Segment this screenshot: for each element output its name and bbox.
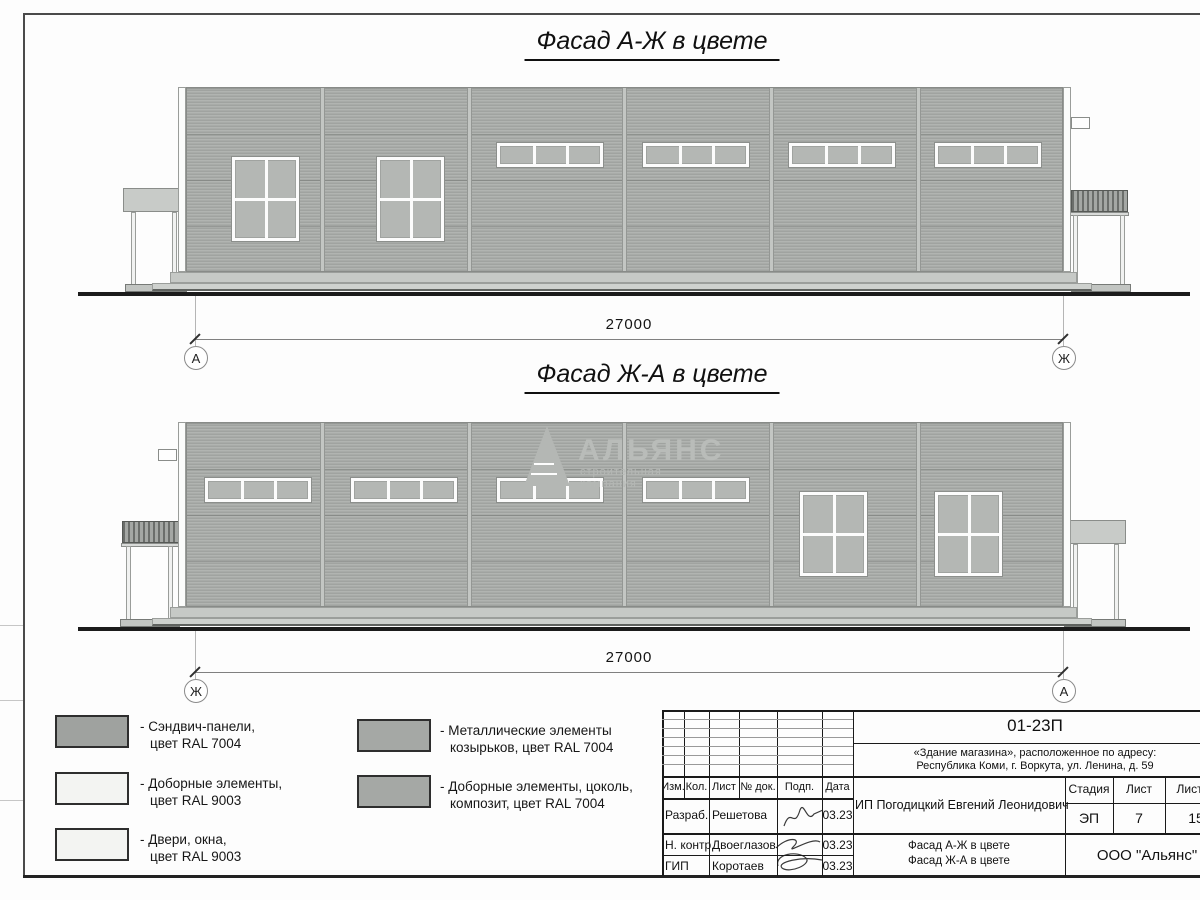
strip-window bbox=[205, 478, 311, 502]
doc-code: 01-23П bbox=[855, 716, 1200, 736]
watermark-name: АЛЬЯНС bbox=[578, 434, 724, 468]
title-block-line bbox=[662, 728, 853, 729]
col-header-list: Лист bbox=[709, 781, 739, 793]
window-mullion bbox=[712, 146, 715, 164]
panel-joint bbox=[769, 423, 774, 606]
title-block-line bbox=[1113, 776, 1114, 833]
row-date: 03.23 bbox=[822, 808, 853, 822]
row-name: Двоеглазов bbox=[712, 838, 776, 852]
canopy-post bbox=[1114, 544, 1119, 620]
sheet-title-line1: Фасад А-Ж в цвете bbox=[855, 840, 1063, 852]
col-header-data: Дата bbox=[822, 781, 853, 793]
title-block-line bbox=[662, 710, 1200, 712]
plinth-lower bbox=[152, 283, 1092, 291]
title-block-line bbox=[662, 755, 853, 756]
company-name: ООО "Альянс" bbox=[1067, 847, 1200, 864]
axis-marker: А bbox=[1052, 679, 1076, 703]
title-block-line bbox=[662, 710, 664, 876]
legend-label: цвет RAL 9003 bbox=[140, 848, 241, 865]
legend-swatch-ral9003 bbox=[55, 828, 129, 861]
dimension-line bbox=[195, 339, 1063, 340]
legend-label: цвет RAL 9003 bbox=[140, 792, 282, 809]
corner-strip bbox=[1063, 422, 1071, 607]
ground-line bbox=[78, 627, 1190, 631]
panel-joint bbox=[916, 88, 921, 271]
title-block-line bbox=[777, 710, 778, 876]
sheet-header: Лист bbox=[1113, 782, 1165, 796]
sheet-title-line2: Фасад Ж-А в цвете bbox=[855, 855, 1063, 867]
canopy-post bbox=[131, 212, 136, 285]
window-mullion bbox=[235, 198, 296, 201]
panel-joint bbox=[467, 423, 472, 606]
legend-swatch-ral9003 bbox=[55, 772, 129, 805]
window-mullion bbox=[241, 481, 244, 499]
legend-label: - Сэндвич-панели, bbox=[140, 718, 255, 735]
legend-swatch-ral7004 bbox=[357, 719, 431, 752]
drawing-sheet: { "titles": { "facade1": "Фасад А-Ж в цв… bbox=[0, 0, 1200, 900]
strip-window bbox=[497, 143, 603, 167]
row-role: ГИП bbox=[665, 859, 689, 873]
canopy-fascia bbox=[1062, 520, 1126, 544]
title-block-line bbox=[709, 710, 710, 876]
legend-label: цвет RAL 7004 bbox=[140, 735, 255, 752]
title-block-line bbox=[662, 798, 853, 800]
title-block-line bbox=[1065, 776, 1066, 876]
watermark-subtitle: строительная компания bbox=[580, 466, 662, 490]
plinth-upper bbox=[170, 607, 1077, 618]
plinth-lower bbox=[152, 618, 1092, 626]
title-block-line bbox=[853, 710, 854, 876]
corner-strip bbox=[1063, 87, 1071, 272]
window-mullion bbox=[380, 198, 441, 201]
panel-joint bbox=[467, 88, 472, 271]
title-block-line bbox=[822, 710, 823, 876]
signature bbox=[781, 800, 826, 832]
window-mullion bbox=[1004, 146, 1007, 164]
window-mullion bbox=[679, 481, 682, 499]
project-address-line1: «Здание магазина», расположенное по адре… bbox=[855, 747, 1200, 759]
title-block-line bbox=[853, 743, 1200, 744]
panel-joint bbox=[320, 88, 325, 271]
row-name: Коротаев bbox=[712, 859, 764, 873]
large-window bbox=[800, 492, 867, 576]
window-mullion bbox=[274, 481, 277, 499]
canopy-post bbox=[1120, 215, 1125, 285]
row-name: Решетова bbox=[712, 808, 767, 822]
large-window bbox=[232, 157, 299, 241]
corner-strip bbox=[178, 87, 186, 272]
large-window bbox=[935, 492, 1002, 576]
strip-window bbox=[789, 143, 895, 167]
strip-window bbox=[351, 478, 457, 502]
legend-label: - Двери, окна, bbox=[140, 831, 241, 848]
title-block-line bbox=[1165, 776, 1166, 833]
panel-joint bbox=[622, 88, 627, 271]
panel-joint bbox=[769, 88, 774, 271]
legend-label: - Доборные элементы, цоколь, bbox=[440, 778, 633, 795]
watermark-logo-icon bbox=[524, 426, 570, 486]
canopy-post bbox=[126, 546, 131, 620]
roof-vent bbox=[1071, 117, 1090, 129]
dimension-line bbox=[195, 672, 1063, 673]
legend-swatch-ral7004 bbox=[357, 775, 431, 808]
window-mullion bbox=[825, 146, 828, 164]
row-role: Н. контр. bbox=[665, 838, 715, 852]
window-mullion bbox=[803, 533, 864, 536]
ground-line bbox=[78, 292, 1190, 296]
window-mullion bbox=[566, 146, 569, 164]
window-mullion bbox=[420, 481, 423, 499]
col-header-podp: Подп. bbox=[777, 781, 822, 793]
strip-window bbox=[643, 143, 749, 167]
window-mullion bbox=[712, 481, 715, 499]
sheets-header: Листов bbox=[1165, 782, 1200, 796]
dimension-value: 27000 bbox=[569, 316, 689, 334]
window-mullion bbox=[533, 146, 536, 164]
canopy-corrugated bbox=[1071, 190, 1128, 212]
title-block-line bbox=[662, 737, 853, 738]
window-mullion bbox=[938, 533, 999, 536]
sheet-number: 7 bbox=[1113, 810, 1165, 826]
title-block-line bbox=[662, 764, 853, 765]
col-header-ndok: № док. bbox=[739, 781, 777, 793]
sheets-total: 15 bbox=[1165, 810, 1200, 826]
title-block-line bbox=[684, 710, 685, 798]
title-block-line bbox=[662, 719, 853, 720]
legend-label: козырьков, цвет RAL 7004 bbox=[440, 739, 613, 756]
client-name: ИП Погодицкий Евгений Леонидович bbox=[855, 798, 1063, 812]
row-role: Разраб. bbox=[665, 808, 708, 822]
title-block-line bbox=[662, 776, 1200, 778]
canopy-corrugated bbox=[122, 521, 179, 543]
corner-strip bbox=[178, 422, 186, 607]
window-mullion bbox=[679, 146, 682, 164]
legend-label: композит, цвет RAL 7004 bbox=[440, 795, 633, 812]
roof-vent bbox=[158, 449, 177, 461]
axis-marker: А bbox=[184, 346, 208, 370]
col-header-kol: Кол. bbox=[684, 781, 709, 793]
panel-joint bbox=[916, 423, 921, 606]
title-block-line bbox=[1065, 803, 1200, 804]
window-mullion bbox=[858, 146, 861, 164]
large-window bbox=[377, 157, 444, 241]
axis-marker: Ж bbox=[1052, 346, 1076, 370]
axis-marker: Ж bbox=[184, 679, 208, 703]
plinth-upper bbox=[170, 272, 1077, 283]
title-block-line bbox=[662, 746, 853, 747]
col-header-izm: Изм. bbox=[661, 781, 685, 793]
window-mullion bbox=[971, 146, 974, 164]
legend-label: - Металлические элементы bbox=[440, 722, 613, 739]
stage-value: ЭП bbox=[1065, 810, 1113, 826]
project-address-line2: Республика Коми, г. Воркута, ул. Ленина,… bbox=[855, 760, 1200, 772]
title-block-line bbox=[662, 855, 853, 856]
panel-joint bbox=[320, 423, 325, 606]
title-block-line bbox=[739, 710, 740, 798]
legend-swatch-ral7004 bbox=[55, 715, 129, 748]
strip-window bbox=[935, 143, 1041, 167]
stage-header: Стадия bbox=[1065, 782, 1113, 796]
window-mullion bbox=[387, 481, 390, 499]
title-block-line bbox=[662, 833, 1200, 835]
legend-label: - Доборные элементы, bbox=[140, 775, 282, 792]
dimension-value: 27000 bbox=[569, 649, 689, 667]
